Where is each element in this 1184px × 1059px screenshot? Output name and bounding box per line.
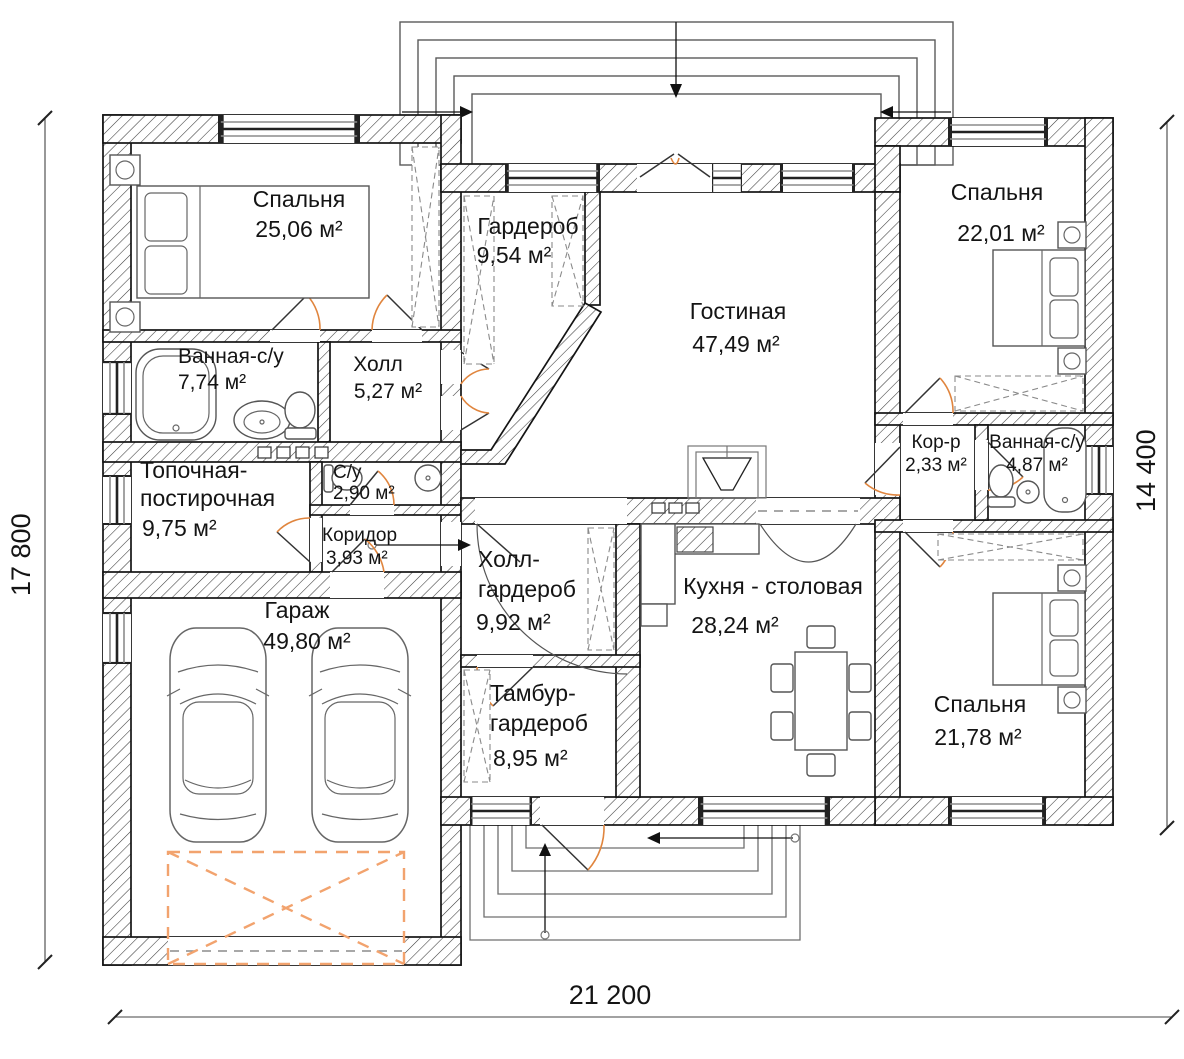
room-label-corridor: Коридор [322,525,397,546]
room-label-bedroom-2: Спальня [951,179,1043,205]
room-area-bedroom-2: 22,01 м² [957,220,1045,246]
room-area-bedroom-3: 21,78 м² [934,724,1022,750]
room-area-bedroom-1: 25,06 м² [255,216,343,242]
room-label-bedroom-3: Спальня [934,691,1026,717]
entry-steps-bottom [470,825,800,940]
door-hall-living-b [441,396,489,430]
dimension-right: 14 400 [1131,115,1174,835]
sink-1 [234,401,290,439]
dimension-bottom: 21 200 [108,980,1179,1024]
dimension-left: 17 800 [6,111,52,969]
window-bedroom3-bottom [948,797,1046,825]
room-label-wardrobe: Гардероб [477,213,578,239]
room-label-kitchen: Кухня - столовая [683,573,863,599]
window-living-mid [712,164,742,192]
car-2 [309,628,411,842]
garage-gate [168,852,404,965]
window-living-left [505,164,600,192]
sink-2 [415,465,441,491]
closet-hall-wardrobe [588,528,614,650]
room-area-wardrobe: 9,54 м² [477,242,552,268]
room-area-bathroom-2: 4,87 м² [1006,455,1068,476]
room-label-tambour-2: гардероб [490,710,588,736]
door-bedroom2 [903,378,953,425]
porch-steps-top [400,22,953,165]
room-label-bathroom-2: Ванная-с/у [989,432,1085,453]
window-bedroom1-top [218,115,360,143]
door-boiler [277,518,322,562]
closet-bedroom3 [938,534,1083,560]
room-label-hall-wardrobe-1: Холл- [478,546,540,572]
room-label-tambour-1: Тамбур- [490,680,576,706]
toilet-1 [285,392,316,439]
door-corridor-small [865,443,900,495]
opening-kitchen [756,498,860,562]
room-label-bathroom-1: Ванная-с/у [178,345,284,368]
room-area-corridor-small: 2,33 м² [905,455,967,476]
room-area-garage: 49,80 м² [263,628,351,654]
room-area-tambour: 8,95 м² [493,745,568,771]
dining-table [771,626,871,776]
closet-tambour [464,670,490,782]
floor-plan-svg: Спальня 25,06 м² Гардероб 9,54 м² Гостин… [0,0,1184,1059]
dimension-left-value: 17 800 [6,513,36,596]
room-label-boiler-2: постирочная [140,485,275,511]
window-garage-left [103,612,131,664]
room-label-hall-wardrobe-2: гардероб [478,576,576,602]
window-living-right [780,164,855,192]
window-bathroom1-left [103,361,131,415]
window-kitchen-bottom [698,797,830,825]
room-area-hall-wardrobe: 9,92 м² [476,609,551,635]
bed-bedroom1 [110,155,369,332]
fireplace [688,446,766,498]
room-label-boiler-1: Топочная- [140,457,247,483]
room-area-bathroom-1: 7,74 м² [178,371,246,394]
room-area-wc: 2,90 м² [333,483,395,504]
dimension-bottom-value: 21 200 [569,980,652,1010]
door-tambour-exit [540,797,604,870]
sink-3 [1017,481,1039,503]
floor-plan-page: Спальня 25,06 м² Гардероб 9,54 м² Гостин… [0,0,1184,1059]
room-area-boiler: 9,75 м² [142,515,217,541]
closet-bedroom2 [955,376,1083,411]
closet-bedroom1 [412,147,439,327]
room-label-garage: Гараж [265,597,331,623]
door-bedroom1-a [270,295,320,342]
window-tambour-bottom [470,797,532,825]
window-bedroom2-top [948,118,1048,146]
window-boiler-left [103,475,131,525]
window-bathroom2-right [1085,445,1113,495]
room-area-kitchen: 28,24 м² [691,612,779,638]
entry-door [637,154,712,192]
car-1 [167,628,269,842]
room-label-corridor-small: Кор-р [911,432,960,453]
room-label-bedroom-1: Спальня [253,186,345,212]
room-label-hall: Холл [353,353,403,376]
room-area-hall: 5,27 м² [354,380,422,403]
dimension-right-value: 14 400 [1131,429,1161,512]
room-label-wc: С/у [333,462,362,483]
room-area-living: 47,49 м² [692,331,780,357]
room-area-corridor: 3,93 м² [326,548,388,569]
room-label-living: Гостиная [690,298,787,324]
